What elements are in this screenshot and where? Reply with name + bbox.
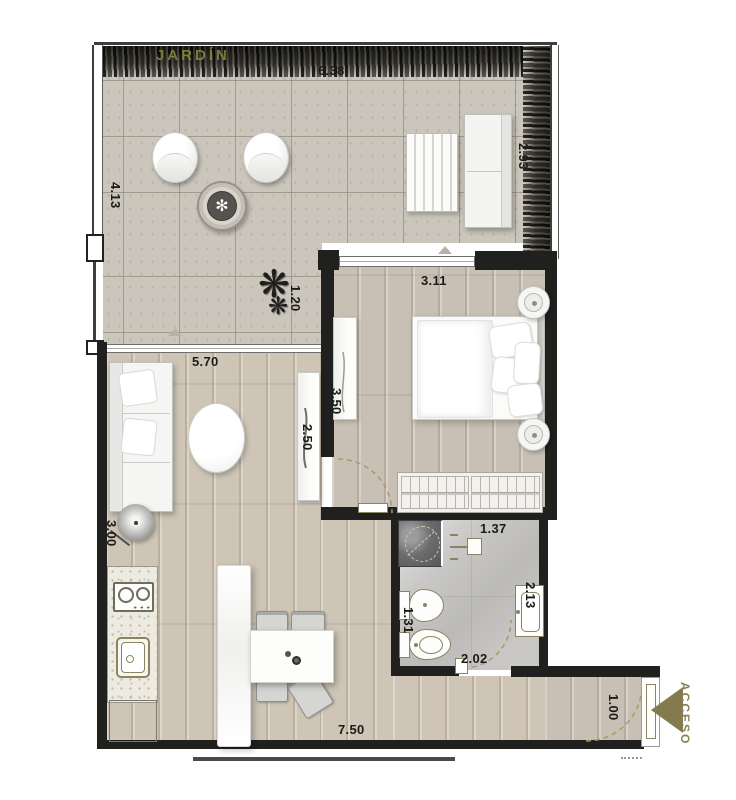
nightstand-bottom — [517, 418, 550, 451]
table-decor-dot-2 — [292, 656, 301, 665]
burner-2 — [136, 587, 150, 601]
dim-bath-bottom: 2.02 — [461, 652, 488, 665]
terrace-rail-left-lower — [93, 262, 96, 342]
access-label: ACCESO — [678, 682, 692, 745]
terrace-sofa — [464, 114, 512, 228]
terrace-chair-2 — [243, 132, 289, 183]
window-marker-bedroom — [438, 246, 452, 254]
living-sofa — [109, 362, 173, 512]
wall-pillar-left-upper — [86, 234, 104, 262]
shower — [398, 520, 443, 567]
dim-bath-top: 1.37 — [480, 522, 507, 535]
bed-pillow-4 — [506, 382, 544, 418]
valve-pipe — [450, 546, 468, 548]
bedroom-door-leaf — [358, 503, 388, 513]
dimension-line-bottom — [193, 757, 455, 761]
toilet-drain — [423, 603, 427, 607]
kitchen-island — [217, 565, 251, 747]
fridge — [109, 700, 157, 742]
nightstand-top — [517, 286, 550, 319]
entry-floor — [545, 677, 644, 743]
dim-living-side: 2.50 — [301, 424, 314, 451]
shower-valve — [450, 532, 484, 562]
dim-kitchen-bottom: 7.50 — [338, 723, 365, 736]
dim-living-left: 3.00 — [105, 520, 118, 547]
threshold-dots — [621, 757, 642, 759]
dim-terrace-top: 6.38 — [318, 64, 345, 77]
floor-lamp — [117, 504, 154, 541]
wardrobe-section-1 — [401, 476, 469, 509]
valve-tick-top — [450, 534, 458, 536]
terrace-rail-left — [92, 45, 103, 235]
sofa-pillow-1 — [118, 369, 158, 408]
bedroom-terrace-window — [339, 256, 475, 267]
kitchen-sink — [116, 637, 150, 678]
valve-box — [467, 538, 482, 555]
dim-entry-door: 1.00 — [607, 694, 620, 721]
cooktop-knobs — [132, 605, 151, 610]
wall-bottom — [97, 740, 644, 749]
burner-1 — [118, 587, 134, 603]
coffee-table — [188, 403, 245, 473]
wall-right-bedroom — [545, 251, 557, 513]
bed-pillow-3 — [513, 341, 541, 384]
window-marker-living — [168, 328, 182, 336]
dim-terrace-step: 1.20 — [289, 285, 302, 312]
wall-entry-top — [511, 666, 660, 677]
sofa-pillow-2 — [120, 417, 158, 456]
valve-tick-bottom — [450, 558, 458, 560]
dim-terrace-left: 4.13 — [109, 182, 122, 209]
dim-terrace-right: 2.93 — [517, 143, 530, 170]
dining-table — [250, 630, 334, 683]
bidet — [399, 629, 452, 661]
fire-pit-table — [197, 181, 247, 231]
living-terrace-window — [104, 344, 322, 353]
terrace-plant-icon-small: ❋ — [268, 292, 288, 321]
wall-bath-bottom-left — [391, 666, 459, 676]
bidet-drain — [414, 643, 418, 647]
dim-bedroom-side: 3.50 — [330, 388, 343, 415]
sofa-cushion-divider-2 — [123, 462, 170, 463]
dim-living-top: 5.70 — [192, 355, 219, 368]
terrace-rail-top — [94, 42, 557, 45]
hall-floor — [393, 676, 545, 743]
dim-bedroom-top: 3.11 — [421, 274, 447, 287]
dim-bath-vanity: 2.13 — [524, 582, 537, 609]
terrace-chair-1 — [152, 132, 198, 183]
wardrobe — [397, 472, 543, 513]
floor-plan: JARDÍN ❋ ❋ — [0, 0, 736, 800]
cooktop — [113, 582, 154, 612]
garden-label: JARDÍN — [156, 47, 230, 64]
terrace-lounger — [406, 133, 458, 212]
dim-bath-left: 1.31 — [402, 607, 415, 634]
terrace-rail-right — [550, 45, 559, 259]
bidet-inner — [419, 636, 443, 654]
bed-blanket — [417, 320, 493, 418]
wardrobe-section-2 — [471, 476, 540, 509]
table-decor-dot-1 — [285, 651, 291, 657]
sofa-cushion-divider-1 — [123, 413, 170, 414]
